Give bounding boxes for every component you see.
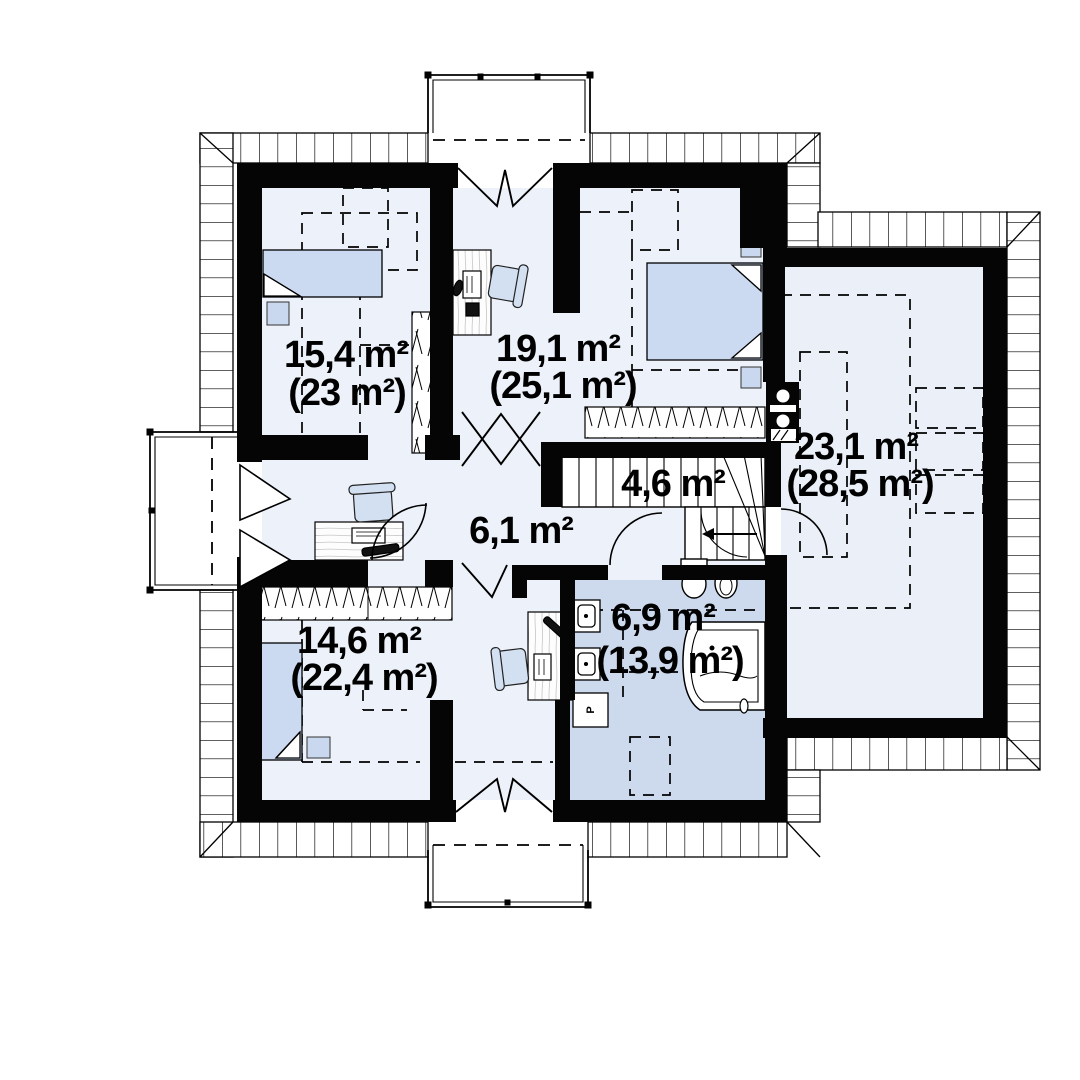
area-label-bedroom-top-left: 15,4 m² [284,334,408,376]
area-label-bedroom-bottom-left-2: (22,4 m²) [290,657,437,699]
balcony-left [147,429,237,593]
balcony-bottom [425,845,591,908]
area-label-bathroom: 6,9 m² [611,597,715,639]
washing-machine-icon: P [573,693,608,727]
floor-plan-page: P 15,4 m² (23 [0,0,1080,1080]
floor-plan-drawing: P 15,4 m² (23 [0,0,1080,1080]
area-label-hall: 6,1 m² [469,510,573,552]
area-label-bathroom-2: (13,9 m²) [596,640,743,682]
area-label-bedroom-bottom-left: 14,6 m² [297,620,421,662]
area-label-staircase: 4,6 m² [621,463,725,505]
area-label-bedroom-top-middle-2: (25,1 m²) [489,365,636,407]
area-label-room-right-2: (28,5 m²) [786,463,933,505]
area-label-bedroom-top-middle: 19,1 m² [496,328,620,370]
area-label-bedroom-top-left-2: (23 m²) [288,372,406,414]
washing-machine-label: P [585,706,597,713]
balcony-top [425,72,593,140]
area-label-room-right: 23,1 m² [794,426,918,468]
